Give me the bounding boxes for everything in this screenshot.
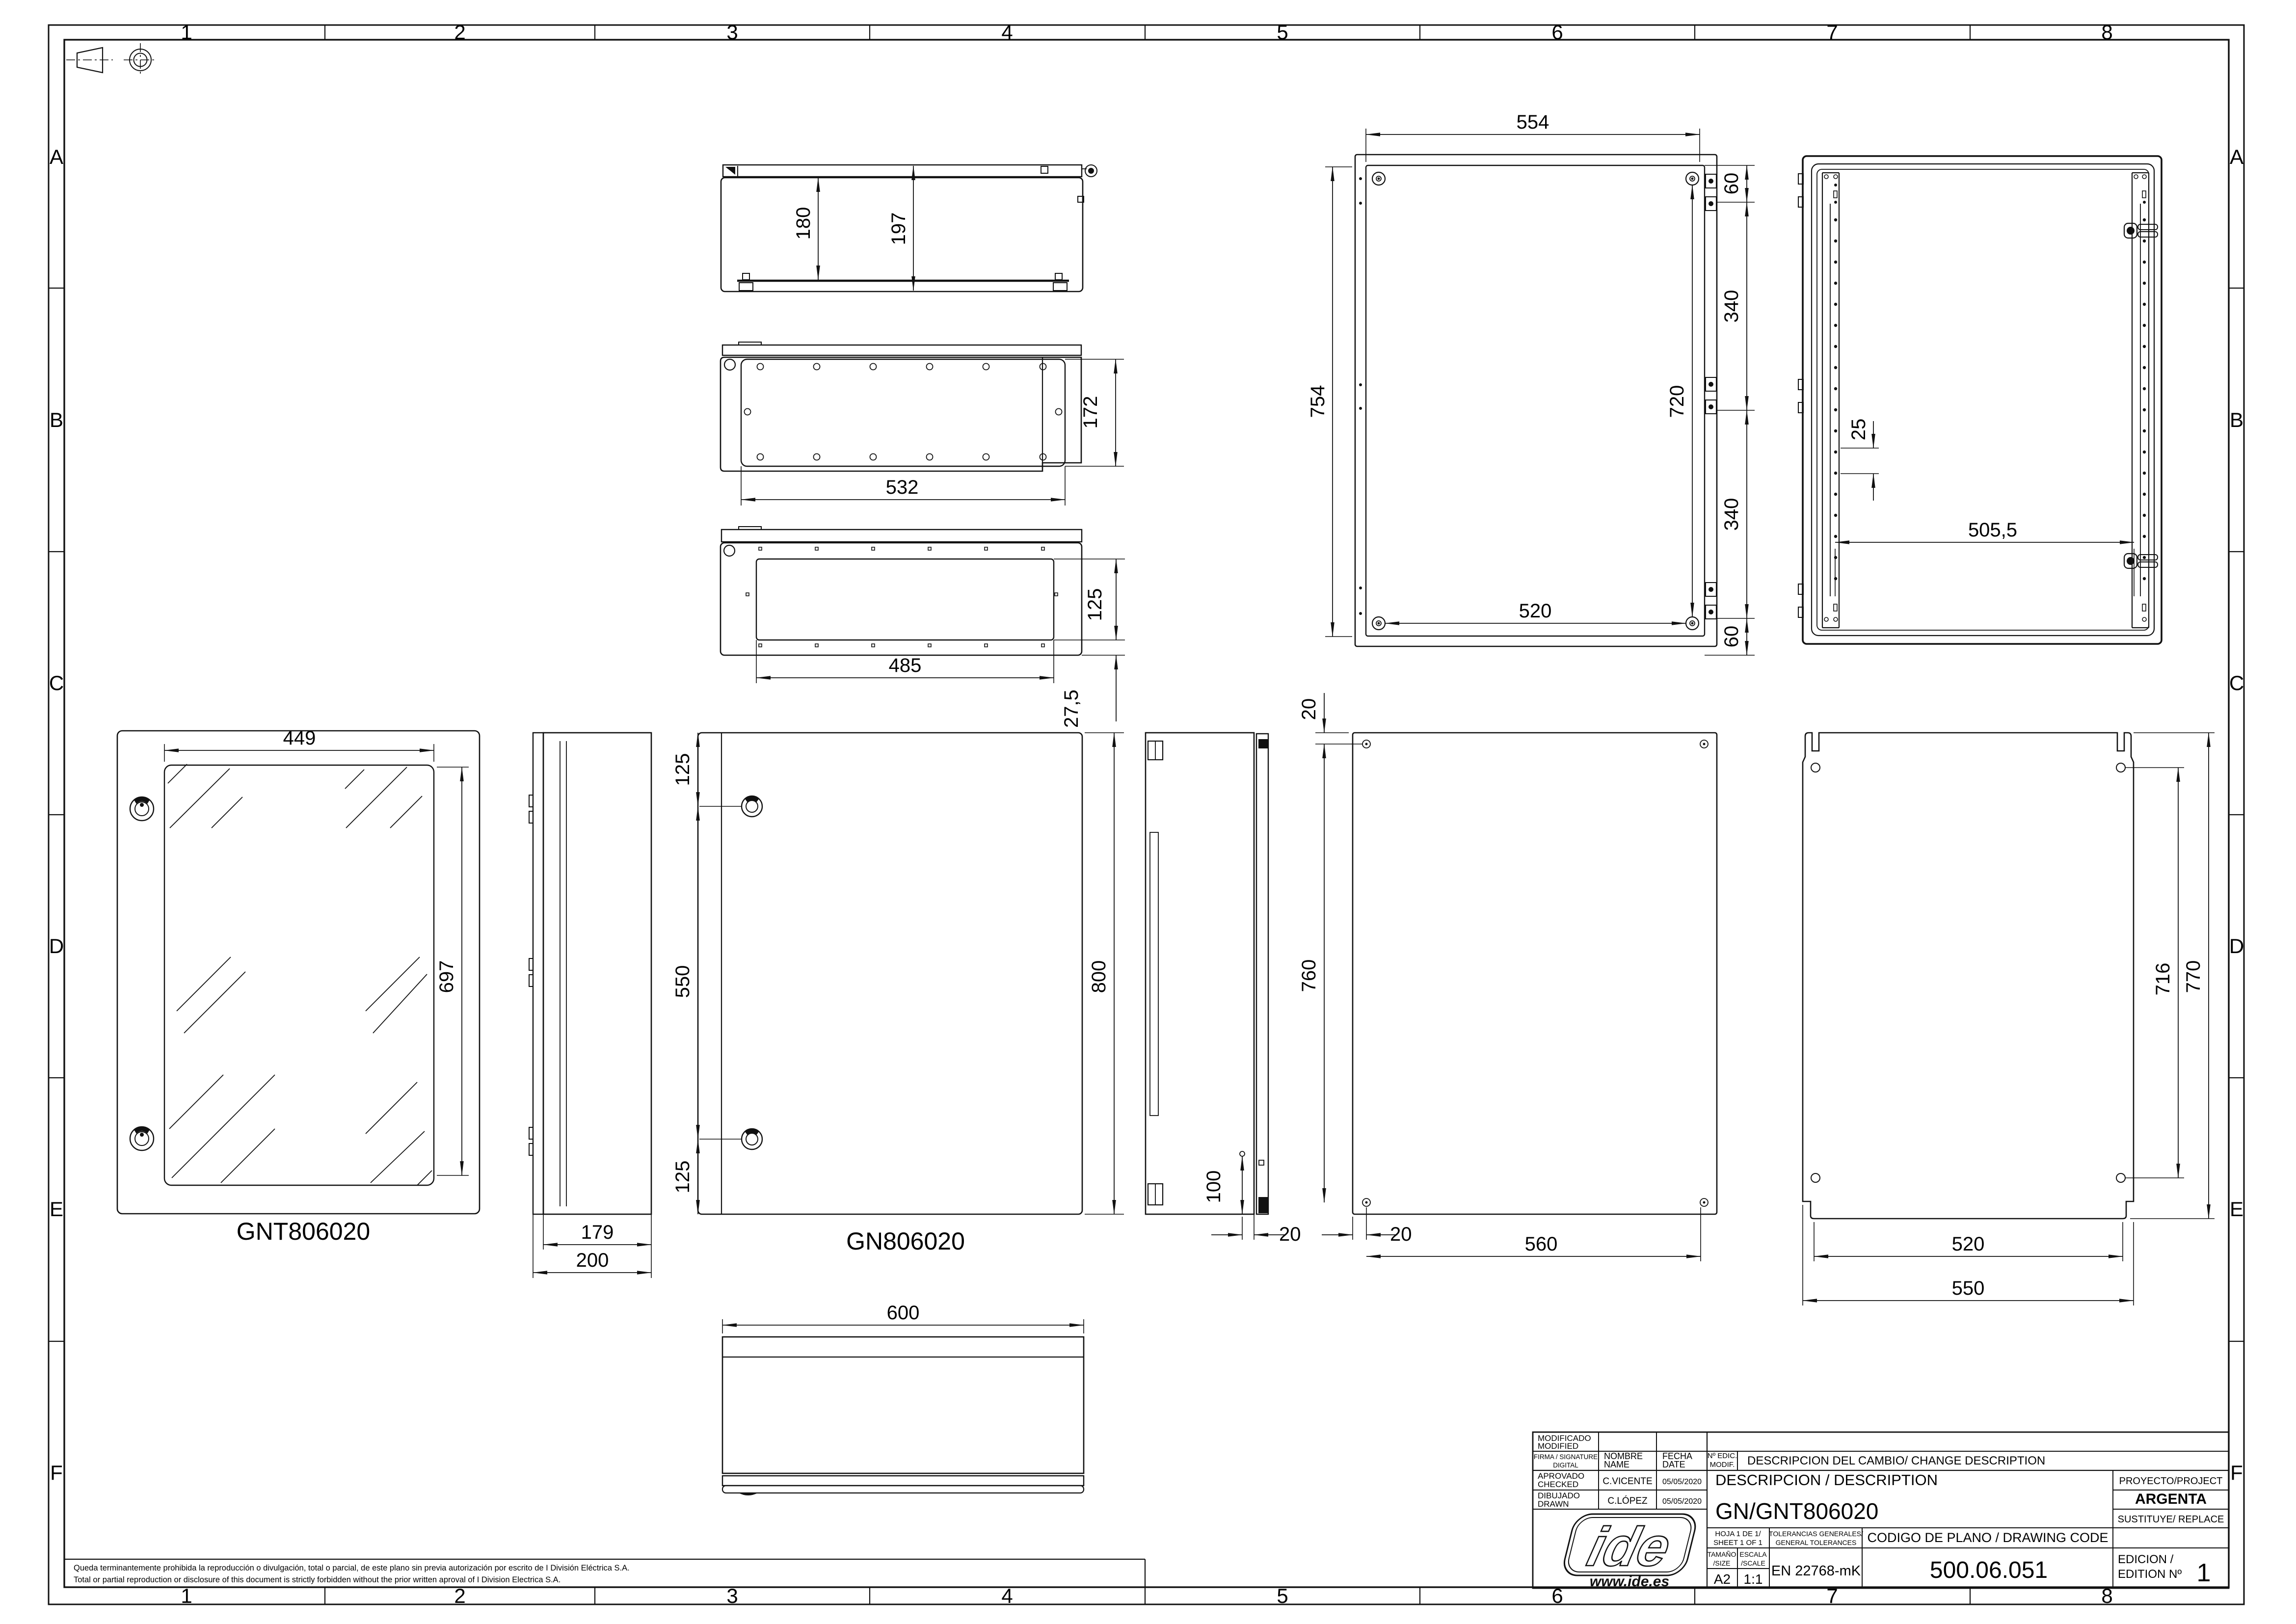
- svg-text:C.LÓPEZ: C.LÓPEZ: [1607, 1495, 1648, 1506]
- svg-text:60: 60: [1721, 626, 1742, 648]
- svg-text:CHECKED: CHECKED: [1538, 1480, 1578, 1489]
- svg-text:MODIFIED: MODIFIED: [1538, 1441, 1578, 1451]
- svg-text:7: 7: [1826, 21, 1838, 44]
- svg-text:C: C: [2229, 671, 2244, 694]
- svg-text:B: B: [2230, 408, 2243, 431]
- svg-text:697: 697: [436, 960, 457, 993]
- svg-text:485: 485: [889, 655, 922, 676]
- svg-text:ide: ide: [1582, 1517, 1677, 1578]
- svg-text:20: 20: [1390, 1224, 1412, 1245]
- svg-text:600: 600: [887, 1302, 920, 1324]
- svg-text:100: 100: [1203, 1171, 1225, 1203]
- svg-text:/SIZE: /SIZE: [1713, 1559, 1730, 1567]
- svg-text:Queda terminantemente prohibid: Queda terminantemente prohibida la repro…: [74, 1564, 630, 1572]
- svg-text:20: 20: [1298, 698, 1320, 720]
- svg-text:C.VICENTE: C.VICENTE: [1602, 1476, 1652, 1487]
- svg-text:F: F: [2230, 1461, 2243, 1484]
- svg-text:E: E: [50, 1198, 63, 1221]
- svg-text:A: A: [2230, 145, 2243, 168]
- svg-text:EN 22768-mK: EN 22768-mK: [1771, 1563, 1861, 1579]
- svg-text:SHEET 1 OF 1: SHEET 1 OF 1: [1713, 1539, 1762, 1547]
- svg-text:550: 550: [1952, 1278, 1985, 1299]
- svg-text:1: 1: [181, 1584, 192, 1607]
- svg-text:F: F: [50, 1461, 63, 1484]
- svg-text:500.06.051: 500.06.051: [1930, 1557, 2048, 1583]
- svg-text:340: 340: [1721, 498, 1742, 531]
- svg-text:532: 532: [886, 477, 919, 498]
- svg-text:2: 2: [454, 1584, 465, 1607]
- svg-text:FIRMA / SIGNATURE: FIRMA / SIGNATURE: [1534, 1453, 1598, 1461]
- svg-text:5: 5: [1277, 1584, 1288, 1607]
- svg-text:PROYECTO/PROJECT: PROYECTO/PROJECT: [2119, 1476, 2223, 1487]
- svg-text:A: A: [50, 145, 63, 168]
- svg-text:1: 1: [2197, 1559, 2211, 1587]
- svg-text:25: 25: [1848, 419, 1869, 441]
- svg-text:20: 20: [1279, 1224, 1301, 1245]
- svg-text:8: 8: [2101, 21, 2112, 44]
- svg-text:6: 6: [1551, 21, 1563, 44]
- svg-text:4: 4: [1001, 1584, 1013, 1607]
- svg-text:D: D: [49, 934, 64, 958]
- svg-text:EDICION /: EDICION /: [2118, 1553, 2174, 1566]
- svg-text:GN806020: GN806020: [846, 1227, 965, 1255]
- svg-text:3: 3: [726, 1584, 738, 1607]
- svg-text:449: 449: [283, 727, 316, 749]
- svg-text:GN/GNT806020: GN/GNT806020: [1715, 1498, 1878, 1524]
- svg-text:GNT806020: GNT806020: [237, 1218, 370, 1245]
- svg-text:200: 200: [576, 1250, 609, 1271]
- svg-text:1: 1: [181, 21, 192, 44]
- svg-text:125: 125: [1084, 588, 1106, 621]
- svg-text:MODIF.: MODIF.: [1710, 1461, 1735, 1469]
- svg-text:5: 5: [1277, 21, 1288, 44]
- svg-text:4: 4: [1001, 21, 1013, 44]
- svg-text:800: 800: [1088, 960, 1110, 993]
- svg-text:05/05/2020: 05/05/2020: [1662, 1497, 1702, 1506]
- svg-text:TOLERANCIAS GENERALES/: TOLERANCIAS GENERALES/: [1769, 1530, 1863, 1538]
- svg-text:NAME: NAME: [1604, 1460, 1629, 1469]
- svg-text:1:1: 1:1: [1744, 1571, 1763, 1587]
- svg-text:60: 60: [1721, 173, 1742, 195]
- svg-text:550: 550: [672, 965, 694, 998]
- svg-text:125: 125: [672, 1161, 694, 1194]
- svg-text:www.ide.es: www.ide.es: [1590, 1573, 1669, 1590]
- svg-text:720: 720: [1666, 385, 1688, 418]
- svg-text:DIGITAL: DIGITAL: [1553, 1462, 1578, 1469]
- svg-text:E: E: [2230, 1198, 2243, 1221]
- svg-text:125: 125: [672, 753, 694, 786]
- svg-text:HOJA 1 DE 1/: HOJA 1 DE 1/: [1715, 1530, 1761, 1538]
- svg-text:27,5: 27,5: [1061, 690, 1082, 728]
- svg-text:179: 179: [581, 1222, 614, 1243]
- svg-text:D: D: [2229, 934, 2244, 958]
- svg-text:520: 520: [1952, 1233, 1985, 1255]
- svg-text:/SCALE: /SCALE: [1741, 1559, 1765, 1567]
- svg-text:DATE: DATE: [1662, 1460, 1685, 1469]
- svg-text:770: 770: [2183, 960, 2204, 993]
- svg-text:C: C: [49, 671, 64, 694]
- svg-text:Nº EDIC.: Nº EDIC.: [1708, 1452, 1737, 1460]
- svg-text:172: 172: [1080, 396, 1101, 429]
- svg-text:716: 716: [2152, 963, 2174, 996]
- svg-text:3: 3: [726, 21, 738, 44]
- svg-text:505,5: 505,5: [1968, 519, 2017, 541]
- svg-text:DESCRIPCION DEL CAMBIO/ CHANG: DESCRIPCION DEL CAMBIO/ CHANGE DESCRIPTI…: [1747, 1454, 2045, 1467]
- svg-text:ESCALA: ESCALA: [1739, 1550, 1767, 1558]
- svg-text:05/05/2020: 05/05/2020: [1662, 1478, 1702, 1486]
- svg-text:TAMAÑO: TAMAÑO: [1708, 1550, 1736, 1558]
- svg-text:Total or partial reproduction: Total or partial reproduction or disclos…: [74, 1575, 561, 1584]
- svg-text:B: B: [50, 408, 63, 431]
- svg-text:ARGENTA: ARGENTA: [2135, 1491, 2207, 1507]
- svg-text:CODIGO DE PLANO / DRAWING CODE: CODIGO DE PLANO / DRAWING CODE: [1867, 1530, 2108, 1545]
- svg-text:180: 180: [793, 207, 814, 240]
- svg-text:DRAWN: DRAWN: [1538, 1499, 1569, 1509]
- svg-text:520: 520: [1519, 600, 1552, 622]
- svg-text:A2: A2: [1714, 1571, 1731, 1587]
- svg-text:SUSTITUYE/ REPLACE: SUSTITUYE/ REPLACE: [2118, 1514, 2224, 1525]
- svg-text:2: 2: [454, 21, 465, 44]
- svg-text:554: 554: [1517, 111, 1549, 133]
- svg-text:340: 340: [1721, 290, 1742, 323]
- svg-text:560: 560: [1525, 1233, 1558, 1255]
- svg-text:760: 760: [1298, 959, 1320, 992]
- svg-text:197: 197: [888, 213, 909, 245]
- svg-text:754: 754: [1307, 385, 1329, 418]
- svg-text:EDITION Nº: EDITION Nº: [2118, 1568, 2182, 1581]
- svg-text:GENERAL TOLERANCES: GENERAL TOLERANCES: [1776, 1539, 1857, 1546]
- svg-text:DESCRIPCION / DESCRIPTION: DESCRIPCION / DESCRIPTION: [1715, 1471, 1938, 1489]
